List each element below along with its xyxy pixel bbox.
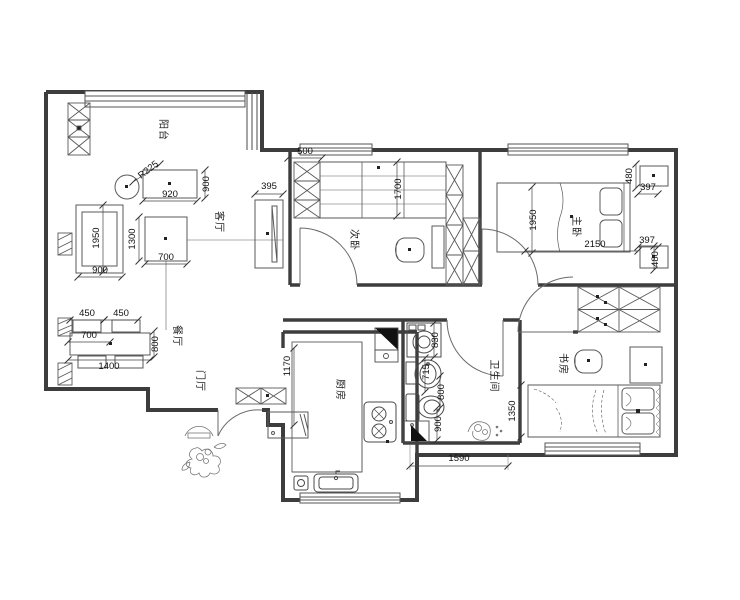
room-label-kitchen: 厨房 — [334, 379, 347, 401]
kitchen-window — [300, 493, 400, 503]
bedroom2-desk — [432, 226, 444, 268]
wall-pier — [247, 92, 257, 150]
corridor-wardrobe — [578, 287, 660, 332]
study-desk — [630, 347, 662, 383]
dimension: 1950 — [528, 184, 539, 257]
study-window — [545, 443, 640, 455]
room-label-balcony: 阳台 — [157, 119, 170, 141]
dimension-text: 2150 — [584, 239, 605, 250]
coffee-table — [145, 217, 283, 330]
bedroom2-bed — [320, 162, 446, 218]
dimension-text: 480 — [624, 168, 635, 184]
dimension: 450 — [101, 308, 142, 324]
master-door — [482, 229, 538, 285]
round-side-table — [115, 175, 139, 199]
dimension-text: 397 — [639, 235, 655, 246]
entry-door-arc — [218, 410, 262, 436]
dimension-text: 450 — [113, 308, 129, 319]
dimension: 900 — [201, 167, 212, 202]
plant — [182, 443, 226, 477]
dimension-text: 900 — [433, 416, 444, 432]
dimension-text: 1950 — [91, 227, 102, 248]
kitchen-sink — [294, 471, 358, 492]
dimension-text: 800 — [436, 384, 447, 400]
hatched-piers — [58, 233, 72, 385]
dimension-text: 1700 — [393, 178, 404, 199]
dimension: 395 — [252, 181, 287, 198]
dimension-text: R225 — [136, 159, 161, 182]
dimension-text: 395 — [261, 181, 277, 192]
balcony-cabinet — [68, 103, 90, 155]
dimension-text: 800 — [150, 336, 161, 352]
dimension-text: 1170 — [282, 356, 293, 376]
room-label-bathroom: 卫生间 — [488, 360, 501, 393]
dimension: 1300 — [127, 214, 143, 265]
shoe-cabinet — [236, 388, 286, 404]
dimension-text: 700 — [158, 252, 174, 263]
stove — [364, 402, 396, 443]
dimension-text: 1950 — [528, 209, 539, 230]
dimension: R225 — [130, 159, 164, 186]
dimension-text: 500 — [297, 146, 313, 157]
dimension-layer: 500395920900R225195013007009004504507001… — [65, 146, 662, 470]
dimension-text: 450 — [79, 308, 95, 319]
bedroom2-chair — [396, 238, 425, 262]
bedroom2-wardrobe-right — [446, 165, 480, 285]
dimension: 1170 — [282, 345, 298, 429]
room-label-master-bedroom: 主卧 — [570, 216, 583, 238]
dimension: 830 — [430, 320, 441, 361]
dimension-text: 830 — [430, 332, 441, 348]
bedroom2-wardrobe-left — [294, 162, 320, 218]
dimension: 920 — [140, 189, 201, 205]
interior-walls — [283, 150, 676, 455]
dimension: 480 — [624, 161, 640, 192]
tv-cabinet — [255, 200, 283, 268]
floor-plan-canvas: 500395920900R225195013007009004504507001… — [0, 0, 740, 600]
room-label-bedroom-2: 次卧 — [348, 229, 361, 251]
dimension-text: 1590 — [448, 453, 469, 464]
windows — [85, 91, 640, 503]
dimension: 397 — [635, 182, 662, 198]
room-label-living-room: 客厅 — [213, 211, 226, 233]
dimension-text: 1350 — [507, 400, 518, 421]
dimension-text: 920 — [162, 189, 178, 200]
dimension-text: 900 — [201, 176, 212, 192]
shower-head — [468, 422, 502, 441]
dimension-text: 700 — [81, 330, 97, 341]
study-bed — [528, 385, 660, 437]
room-label-study: 书房 — [557, 353, 570, 375]
dimension: 800 — [436, 373, 447, 412]
dimension: 1350 — [507, 382, 525, 441]
room-label-dining-room: 餐厅 — [171, 325, 184, 347]
study-chair — [575, 350, 603, 373]
dimension-text: 1400 — [98, 361, 119, 372]
entry-lamp — [185, 426, 213, 438]
dimension: 800 — [150, 328, 161, 361]
dimension: 1700 — [393, 159, 404, 220]
dimension-text: 397 — [640, 182, 656, 193]
master-window — [508, 144, 628, 155]
dimension-text: 715 — [421, 364, 432, 380]
kitchen-counter — [292, 342, 362, 472]
balcony-window — [85, 91, 245, 107]
dimension-text: 900 — [92, 265, 108, 276]
dimension-text: 1300 — [127, 228, 138, 249]
room-label-entry-hall: 门厅 — [194, 370, 207, 392]
dimension-text: 480 — [650, 251, 661, 267]
